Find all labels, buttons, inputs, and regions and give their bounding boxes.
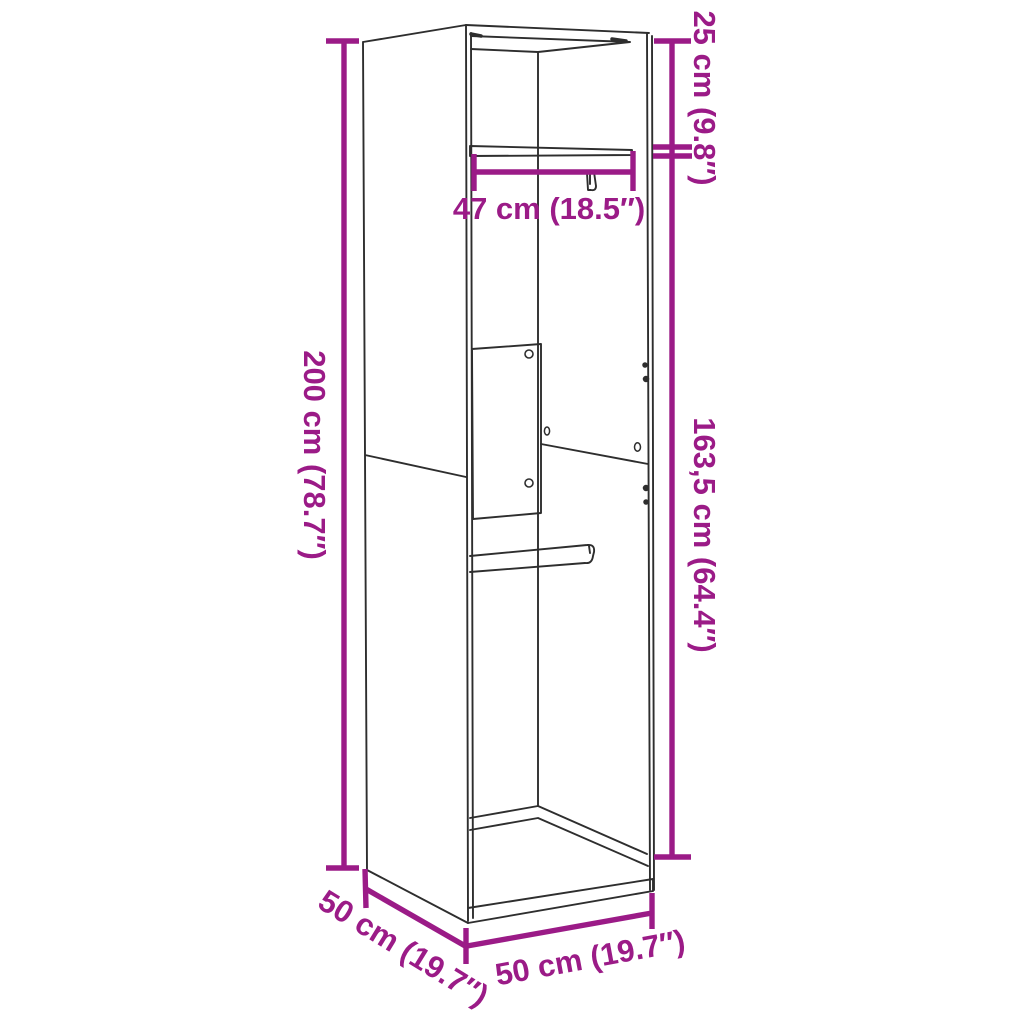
wardrobe-top-panel — [466, 25, 649, 52]
dim-label-below-rail: 163,5 cm (64.4″) — [687, 417, 722, 652]
wardrobe-front-right-edge — [647, 33, 654, 890]
dowel-mark — [644, 486, 649, 491]
divider-panel — [472, 344, 541, 519]
wardrobe-dimension-diagram: 200 cm (78.7″) 25 cm (9.8″) 163,5 cm (64… — [0, 0, 1024, 1024]
dim-label-total-height: 200 cm (78.7″) — [297, 350, 332, 560]
lower-clothes-rail — [470, 545, 594, 572]
dowel-mark — [643, 363, 647, 367]
dimensions: 200 cm (78.7″) 25 cm (9.8″) 163,5 cm (64… — [297, 10, 722, 1013]
diagram-svg: 200 cm (78.7″) 25 cm (9.8″) 163,5 cm (64… — [0, 0, 1024, 1024]
wardrobe-side-panel — [363, 25, 468, 923]
screw-hole — [544, 427, 549, 435]
back-panel-seam — [541, 444, 648, 464]
screw-hole — [525, 350, 533, 358]
wardrobe-line-art — [363, 25, 654, 923]
screw-hole — [525, 479, 533, 487]
dim-line-rail-length — [474, 151, 633, 191]
screw-hole — [635, 443, 641, 451]
dowel-mark — [644, 500, 648, 504]
dowel-mark — [644, 377, 649, 382]
dim-label-rail-length: 47 cm (18.5″) — [453, 191, 645, 226]
dim-line-right-heights — [653, 41, 692, 857]
interior-floor — [470, 806, 648, 866]
dim-label-top-section: 25 cm (9.8″) — [687, 10, 722, 185]
upper-rail-bracket — [587, 172, 596, 190]
upper-clothes-rail — [470, 146, 632, 156]
dim-label-width: 50 cm (19.7″) — [492, 923, 688, 992]
